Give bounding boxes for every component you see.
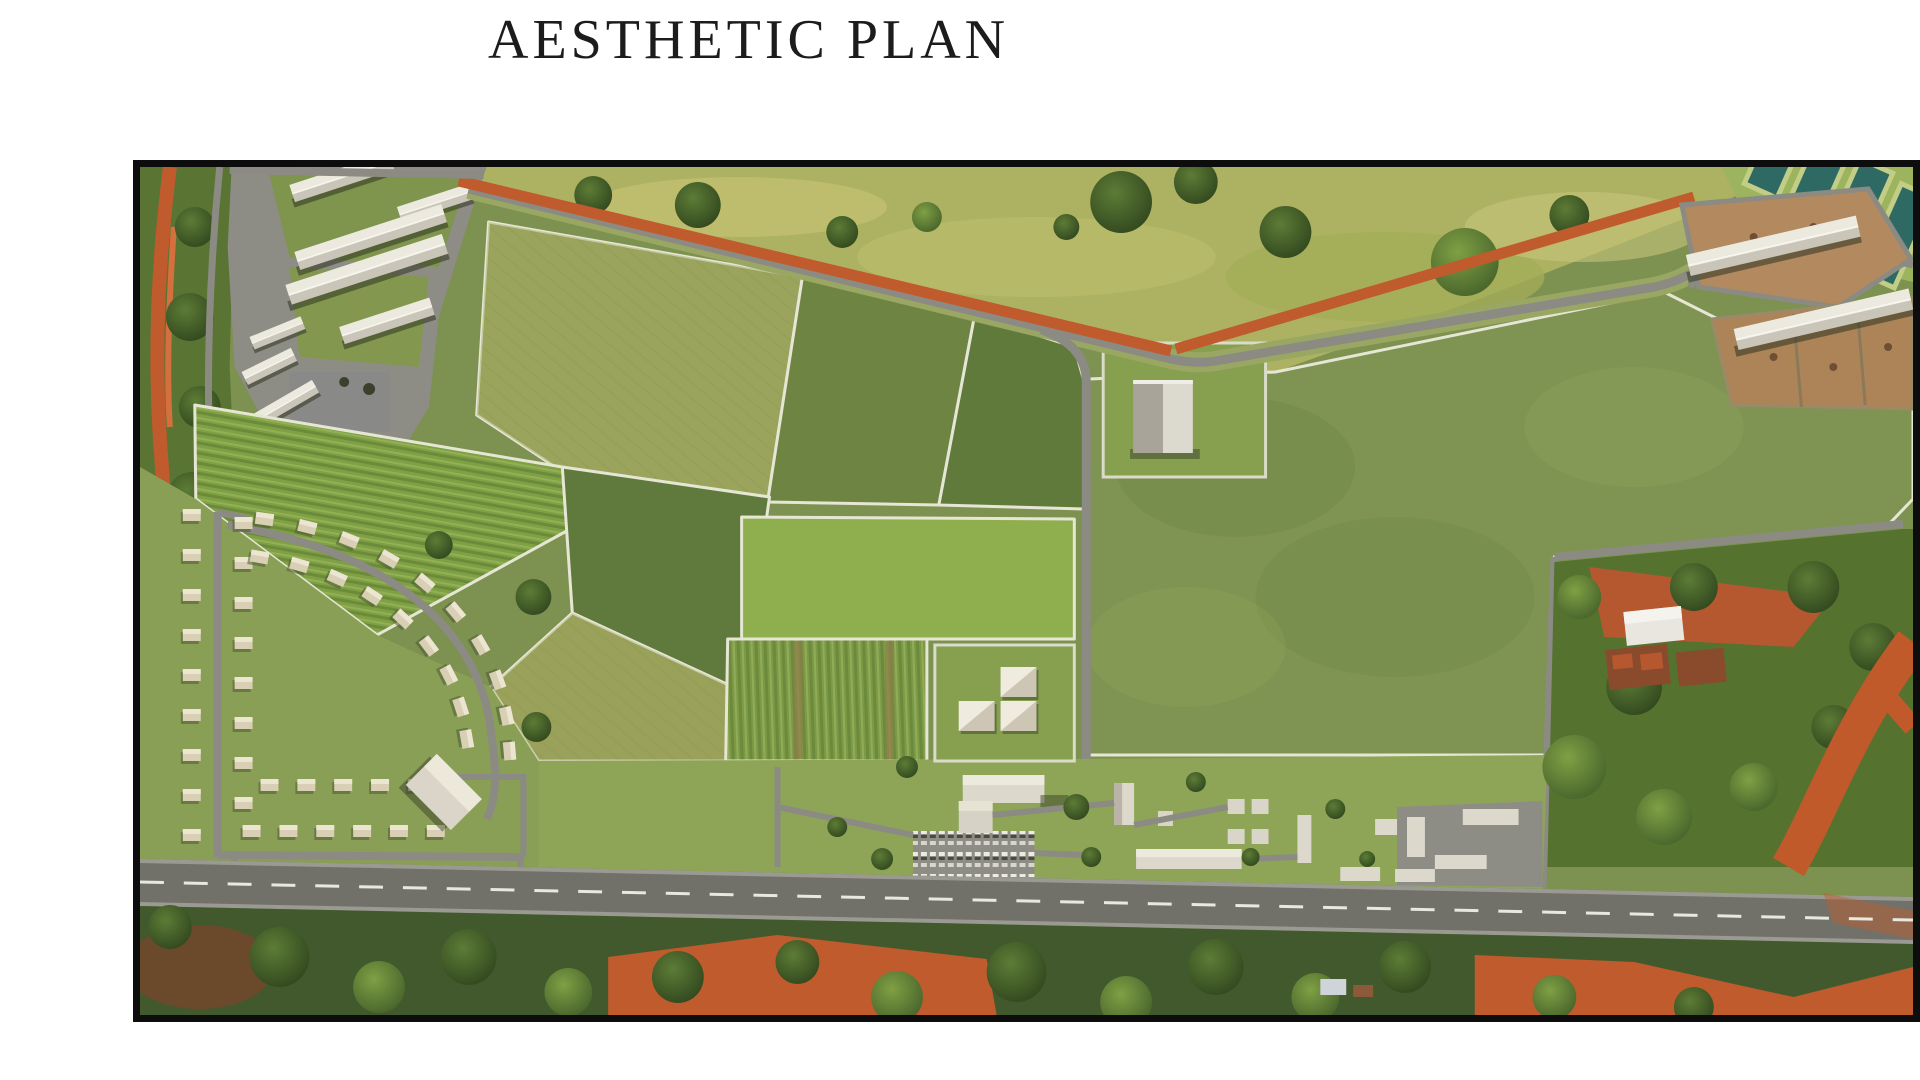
site-plan-frame: [133, 160, 1920, 1022]
white-barn: [1130, 380, 1200, 459]
aerial-site-plan-image: [140, 167, 1913, 1015]
village: [1542, 529, 1913, 867]
page-title: AESTHETIC PLAN: [488, 8, 1388, 72]
